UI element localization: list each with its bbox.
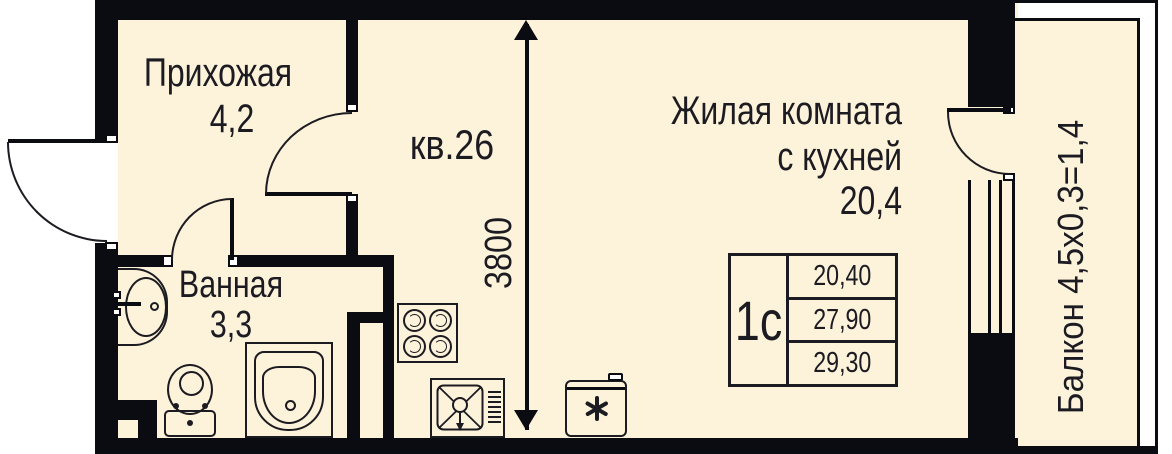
balcony-outer-right-line bbox=[1155, 0, 1158, 454]
balcony-inner-right-line bbox=[1137, 18, 1140, 446]
bath-sink-knob bbox=[112, 308, 121, 316]
bathroom-area: 3,3 bbox=[139, 306, 323, 346]
plan-type-cell: 1с bbox=[731, 256, 789, 384]
balcony-outer-top-line bbox=[1015, 0, 1158, 3]
dimension-arrow-up bbox=[514, 20, 538, 40]
window-glazing-line bbox=[1012, 180, 1015, 333]
fridge-handle bbox=[608, 373, 623, 381]
toilet-inner-circle bbox=[179, 371, 204, 396]
window-glazing-line bbox=[999, 180, 1002, 333]
table-row: 27,90 bbox=[789, 297, 895, 341]
entrance-door-arc bbox=[7, 142, 107, 242]
balcony-inner-top-line bbox=[1015, 18, 1140, 21]
wall-bath-right bbox=[383, 255, 394, 438]
wall-bottom bbox=[95, 438, 1018, 454]
wall-corner-block-a bbox=[118, 400, 157, 420]
areas-column: 20,40 27,90 29,30 bbox=[789, 256, 895, 384]
fridge-star-icon bbox=[584, 396, 609, 421]
toilet-hinge-dot bbox=[202, 403, 208, 409]
toilet-hinge-dot bbox=[173, 403, 179, 409]
wall-duct-left bbox=[347, 323, 360, 438]
wall-top bbox=[95, 0, 1015, 20]
toilet-tank-dot bbox=[187, 420, 193, 426]
window-glazing-line bbox=[988, 180, 991, 333]
living-room-area: 20,4 bbox=[662, 180, 902, 222]
hallway-label: Прихожая bbox=[126, 52, 310, 94]
window-glazing-line bbox=[968, 180, 971, 333]
apartment-info-table: 1с 20,40 27,90 29,30 bbox=[728, 253, 898, 387]
living-area-value: 20,40 bbox=[813, 260, 871, 293]
hallway-area: 4,2 bbox=[140, 98, 324, 140]
balcony-label: Балкон 4,5х0,3=1,4 bbox=[1052, 97, 1092, 437]
wall-left-lower bbox=[95, 243, 118, 454]
apartment-area-value: 27,90 bbox=[813, 304, 871, 337]
dimension-arrow-down bbox=[514, 410, 538, 430]
stove-icon bbox=[397, 303, 458, 363]
wall-hall-room-upper bbox=[346, 20, 358, 103]
wall-hall-room-lower bbox=[346, 203, 358, 258]
bathroom-label: Ванная bbox=[139, 266, 323, 306]
wall-left-upper bbox=[95, 0, 118, 142]
kitchen-sink-rack bbox=[488, 391, 501, 426]
fridge-lid-line bbox=[567, 387, 625, 390]
wall-balcony-bottom bbox=[1015, 446, 1158, 454]
wall-corner-block-b bbox=[138, 420, 157, 438]
total-area-value: 29,30 bbox=[813, 347, 871, 380]
bath-sink-faucet bbox=[117, 302, 141, 306]
pier-balcony-upper bbox=[968, 20, 1015, 107]
bath-sink-knob bbox=[112, 291, 121, 299]
pier-balcony-lower bbox=[968, 333, 1015, 438]
door-jamb bbox=[346, 103, 358, 112]
living-room-label-line1: Жилая комната bbox=[662, 90, 902, 132]
dimension-line bbox=[525, 24, 529, 430]
wall-duct-top bbox=[347, 312, 383, 323]
table-row: 20,40 bbox=[789, 256, 895, 297]
floor-plan: 3800 Прихожая 4,2 кв.26 Ванная 3,3 Жилая… bbox=[0, 0, 1172, 454]
dimension-label: 3800 bbox=[480, 194, 520, 313]
door-jamb bbox=[105, 242, 118, 251]
living-room-label-line2: с кухней bbox=[662, 136, 902, 178]
shower-drain bbox=[285, 400, 296, 411]
kitchen-sink-basin bbox=[436, 384, 486, 432]
apartment-label: кв.26 bbox=[354, 123, 550, 167]
plan-type-label: 1с bbox=[735, 288, 782, 353]
table-row: 29,30 bbox=[789, 340, 895, 384]
